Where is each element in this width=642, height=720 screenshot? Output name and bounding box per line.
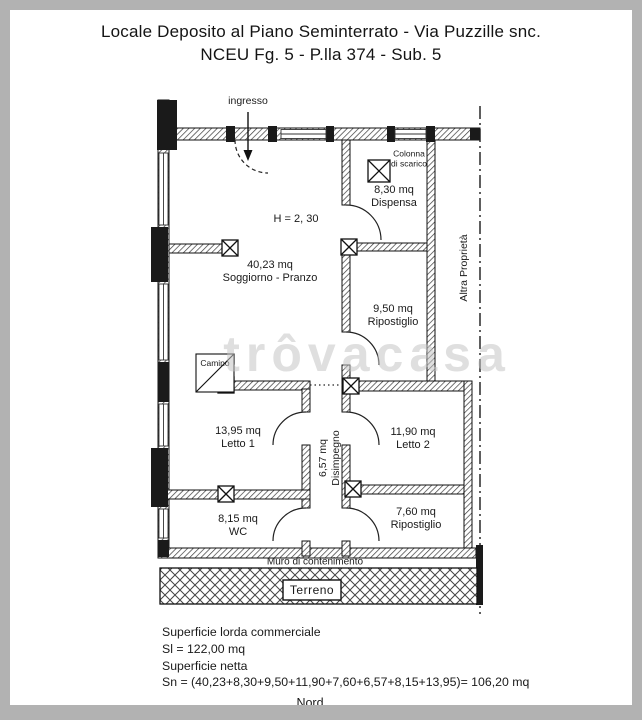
fireplace-label: Camino — [200, 358, 229, 368]
room-name: Dispensa — [371, 197, 417, 210]
room-area: 8,15 mq — [218, 513, 258, 526]
room-name: Disimpegno — [330, 430, 343, 485]
room-label-letto-2: 11,90 mq Letto 2 — [390, 426, 435, 452]
room-name: Soggiorno - Pranzo — [223, 272, 318, 285]
room-label-ripostiglio-2: 7,60 mq Ripostiglio — [391, 506, 442, 532]
area-summary-block: Superficie lorda commerciale Sl = 122,00… — [162, 624, 529, 691]
walls — [158, 100, 480, 558]
room-name: Letto 1 — [215, 438, 261, 451]
room-area: 9,50 mq — [368, 303, 419, 316]
gross-area-label: Superficie lorda commerciale — [162, 624, 529, 641]
room-name: Letto 2 — [390, 439, 435, 452]
room-label-dispensa: 8,30 mq Dispensa — [371, 184, 417, 210]
net-area-formula: Sn = (40,23+8,30+9,50+11,90+7,60+6,57+8,… — [162, 674, 529, 691]
room-label-letto-1: 13,95 mq Letto 1 — [215, 425, 261, 451]
other-property-label: Altra Proprietà — [458, 234, 470, 301]
gross-area-value: Sl = 122,00 mq — [162, 641, 529, 658]
scanned-floorplan-document: Locale Deposito al Piano Seminterrato - … — [0, 0, 642, 720]
page-border-left — [0, 0, 10, 720]
room-label-wc: 8,15 mq WC — [218, 513, 258, 539]
room-area: 11,90 mq — [390, 426, 435, 439]
room-name: Ripostiglio — [368, 316, 419, 329]
room-label-disimpegno: 6,57 mq Disimpegno — [317, 430, 343, 485]
room-label-soggiorno: 40,23 mq Soggiorno - Pranzo — [223, 259, 318, 285]
colonna-di-scarico-symbol — [368, 160, 390, 182]
drain-column-label-line2: di scarico — [391, 159, 427, 169]
room-name: WC — [218, 526, 258, 539]
page-border-top — [0, 0, 642, 10]
terrain-label: Terreno — [290, 583, 334, 597]
entrance-label: ingresso — [228, 95, 268, 107]
page-border-right — [632, 0, 642, 720]
page-border-bottom — [0, 705, 642, 720]
net-area-label: Superficie netta — [162, 658, 529, 675]
room-area: 13,95 mq — [215, 425, 261, 438]
document-title-line2: NCEU Fg. 5 - P.lla 374 - Sub. 5 — [10, 45, 632, 65]
entrance-door-arc — [235, 140, 268, 173]
ceiling-height-note: H = 2, 30 — [274, 213, 319, 225]
floor-plan-drawing — [0, 0, 642, 720]
room-area: 8,30 mq — [371, 184, 417, 197]
room-label-ripostiglio-1: 9,50 mq Ripostiglio — [368, 303, 419, 329]
document-title-line1: Locale Deposito al Piano Seminterrato - … — [10, 22, 632, 42]
room-area: 40,23 mq — [223, 259, 318, 272]
drain-column-label: Colonna di scarico — [391, 150, 427, 169]
room-area: 6,57 mq — [317, 430, 330, 485]
retaining-wall-label: Muro di contenimento — [267, 557, 363, 568]
room-name: Ripostiglio — [391, 519, 442, 532]
room-area: 7,60 mq — [391, 506, 442, 519]
